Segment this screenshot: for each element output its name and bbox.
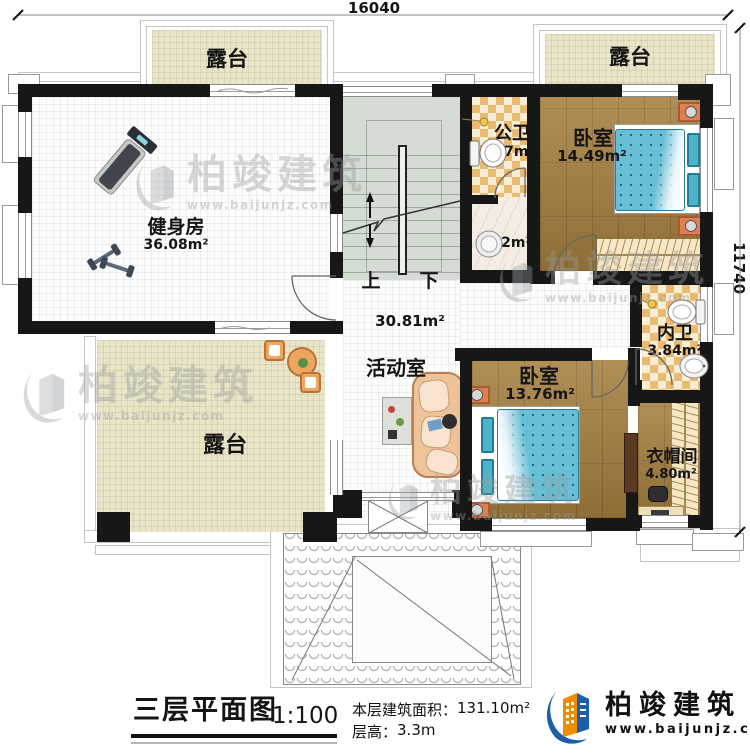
person bbox=[442, 414, 457, 429]
bedroom1-wardrobe bbox=[597, 239, 700, 272]
bed-pillow bbox=[481, 417, 494, 453]
brand-website: www.baijunjz.com bbox=[605, 722, 750, 737]
terrace-side-window bbox=[330, 440, 343, 495]
activity-label: 活动室 bbox=[366, 358, 426, 379]
terrace-tr-label: 露台 bbox=[609, 46, 651, 68]
corridor-floor bbox=[460, 283, 630, 348]
wall bbox=[626, 515, 642, 528]
wall bbox=[330, 252, 343, 278]
title-underline bbox=[131, 734, 337, 738]
terrace-chair bbox=[300, 372, 321, 393]
wall bbox=[290, 321, 343, 334]
brand-logo-icon bbox=[543, 683, 595, 745]
dimension-width: 16040 bbox=[348, 1, 400, 17]
bed-duvet bbox=[497, 409, 579, 501]
window-sill-box bbox=[2, 105, 19, 163]
wall bbox=[460, 270, 530, 283]
stairs-up-label: 上 bbox=[361, 272, 380, 292]
public-bath-area: 3.37m² bbox=[479, 145, 534, 160]
wall bbox=[593, 271, 713, 285]
tv-cabinet bbox=[382, 397, 412, 445]
hall-window bbox=[362, 492, 454, 501]
watermark-logo-icon bbox=[20, 364, 70, 424]
wall bbox=[472, 195, 498, 204]
terrace-pillar bbox=[97, 512, 130, 542]
gym-left-window bbox=[18, 213, 32, 278]
wall bbox=[540, 84, 622, 97]
wall-pillar bbox=[452, 490, 472, 518]
floor-height-value: 3.3m bbox=[397, 721, 435, 742]
bedroom2-label: 卧室 bbox=[519, 366, 559, 387]
bedroom1-window bbox=[700, 128, 713, 212]
terrace-door-sill bbox=[622, 84, 678, 97]
sofa bbox=[412, 372, 464, 478]
bedroom2-area: 13.76m² bbox=[505, 387, 575, 403]
shower-area: 2.62m² bbox=[476, 236, 531, 251]
gym-label: 健身房 bbox=[147, 218, 204, 238]
wall bbox=[455, 348, 592, 361]
bed-pillow bbox=[481, 459, 494, 495]
cloakroom-door-panel bbox=[624, 433, 638, 493]
bedroom1-area: 14.49m² bbox=[557, 149, 627, 165]
inner-bath-window bbox=[700, 287, 713, 342]
floor-area-line: 本层建筑面积：131.10m² bbox=[352, 699, 530, 720]
wall bbox=[688, 515, 713, 528]
wall bbox=[18, 321, 215, 334]
brand-logo: 柏竣建筑 www.baijunjz.com bbox=[543, 683, 750, 745]
stairs-down-label: 下 bbox=[419, 272, 438, 292]
terrace-bl-parapet-left bbox=[84, 336, 96, 542]
wall bbox=[18, 84, 210, 97]
terrace-door-sill bbox=[210, 84, 295, 97]
activity-area: 30.81m² bbox=[375, 314, 445, 330]
window-sill-box bbox=[636, 529, 694, 545]
inner-bath-label: 内卫 bbox=[657, 325, 693, 344]
terrace-chair bbox=[264, 340, 285, 361]
window-sill-box bbox=[692, 533, 744, 551]
bay-skylight bbox=[368, 500, 428, 533]
wall bbox=[628, 348, 640, 406]
bedroom2-window bbox=[492, 518, 586, 531]
terrace-door-sill bbox=[215, 321, 290, 334]
wall bbox=[460, 97, 472, 282]
wall bbox=[432, 84, 533, 97]
wall bbox=[530, 271, 555, 284]
bed-duvet bbox=[615, 129, 685, 211]
inner-bath-area: 3.84m² bbox=[647, 344, 702, 359]
floor-area-label: 本层建筑面积： bbox=[352, 699, 457, 720]
bedroom1-bed bbox=[614, 124, 700, 214]
bed-pillow bbox=[687, 173, 700, 207]
gym-area: 36.08m² bbox=[143, 238, 208, 253]
bedroom1-label: 卧室 bbox=[573, 128, 613, 149]
wall bbox=[630, 390, 713, 403]
gym-left-window bbox=[18, 112, 32, 157]
floor-plan-canvas: 柏竣建筑www.baijunjz.com 柏竣建筑www.baijunjz.co… bbox=[0, 0, 750, 753]
floor-height-label: 层高： bbox=[352, 721, 397, 742]
terrace-bottom-label: 露台 bbox=[203, 434, 247, 457]
wall bbox=[460, 518, 492, 531]
floor-height-line: 层高：3.3m bbox=[352, 721, 435, 742]
cloakroom-label: 衣帽间 bbox=[647, 449, 698, 467]
wall bbox=[330, 84, 343, 214]
plan-scale: 1:100 bbox=[272, 704, 338, 728]
bed-pillow bbox=[687, 133, 700, 167]
window-sill-box bbox=[480, 531, 592, 547]
cloakroom-area: 4.80m² bbox=[645, 468, 696, 482]
gym-floor bbox=[32, 97, 330, 321]
stair-window bbox=[343, 86, 432, 97]
cloakroom-window bbox=[642, 515, 688, 528]
bedroom2-bed bbox=[470, 406, 580, 504]
window-sill-box bbox=[714, 118, 734, 190]
terrace-tl-label: 露台 bbox=[206, 48, 248, 70]
stair-rail bbox=[398, 145, 407, 275]
gym-side-window bbox=[330, 214, 343, 252]
window-sill-box bbox=[2, 205, 19, 285]
plan-title: 三层平面图 bbox=[133, 697, 278, 725]
terrace-pillar bbox=[303, 512, 337, 542]
public-bath-label: 公卫 bbox=[494, 125, 530, 144]
roof-flat-panel bbox=[352, 556, 492, 663]
dimension-height: 11740 bbox=[730, 242, 748, 294]
dressing-stool bbox=[648, 486, 668, 502]
title-underline-2 bbox=[131, 742, 337, 744]
brand-name: 柏竣建筑 bbox=[605, 692, 750, 719]
floor-area-value: 131.10m² bbox=[457, 699, 530, 720]
wall bbox=[630, 285, 642, 347]
